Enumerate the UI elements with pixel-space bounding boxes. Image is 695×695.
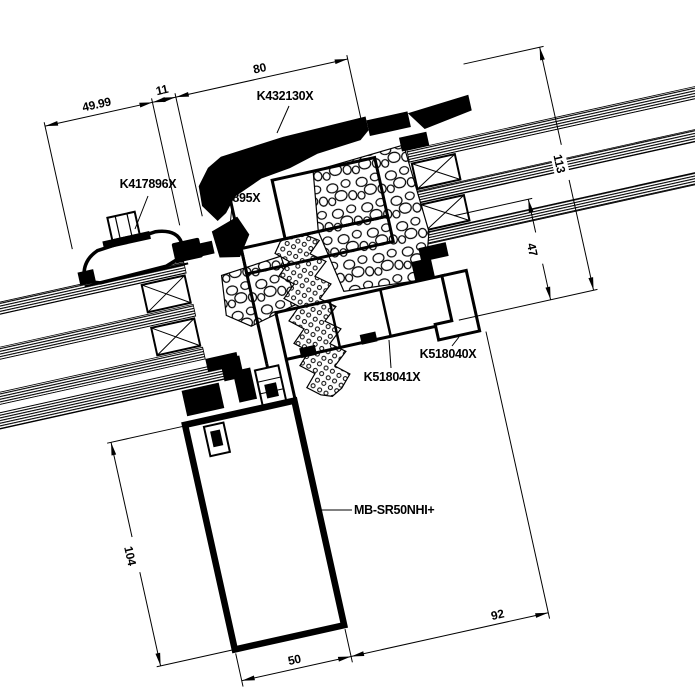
cad-section-drawing: 49.99 11 80 113 47 50 92 — [0, 0, 695, 695]
label-system: MB-SR50NHI+ — [354, 503, 434, 517]
label-gasket-inner: K417895X — [204, 191, 262, 205]
label-profile-bottom-right: K518040X — [420, 347, 478, 361]
label-cover-cap: K432130X — [257, 89, 315, 103]
label-gasket-outer: K417896X — [120, 177, 178, 191]
label-profile-bottom-left: K518041X — [364, 370, 422, 384]
